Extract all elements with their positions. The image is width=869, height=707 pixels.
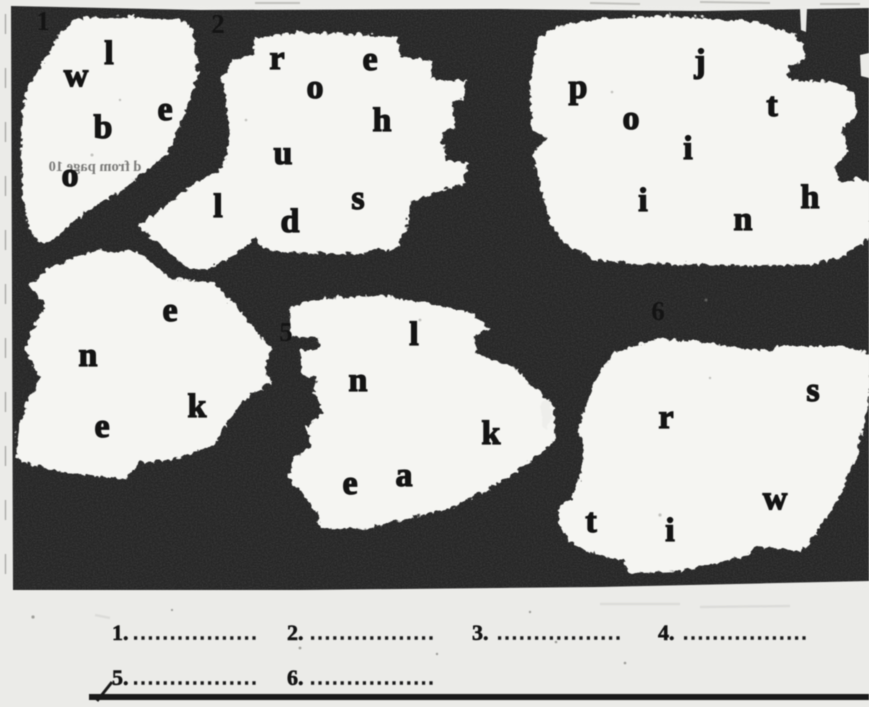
svg-text:r: r — [269, 40, 284, 77]
svg-text:d: d — [281, 203, 300, 240]
svg-text:n: n — [734, 201, 753, 238]
svg-text:l: l — [104, 35, 113, 72]
svg-text:s: s — [351, 180, 364, 217]
svg-text:3.: 3. — [472, 620, 489, 645]
svg-text:l: l — [213, 188, 222, 225]
svg-text:i: i — [638, 182, 647, 219]
svg-text:2.: 2. — [287, 620, 304, 645]
svg-text:o: o — [307, 69, 324, 106]
svg-text:2: 2 — [211, 9, 225, 39]
svg-text:4.: 4. — [658, 620, 675, 645]
svg-text:e: e — [162, 292, 177, 329]
svg-text:l: l — [409, 316, 418, 353]
svg-text:5.: 5. — [112, 665, 129, 690]
svg-text:i: i — [683, 130, 692, 167]
svg-text:r: r — [658, 399, 673, 436]
svg-text:6.: 6. — [287, 665, 304, 690]
svg-text:6: 6 — [651, 296, 665, 326]
svg-text:5: 5 — [279, 317, 293, 347]
svg-text:b: b — [94, 109, 113, 146]
svg-text:s: s — [806, 372, 819, 409]
svg-text:t: t — [766, 87, 778, 124]
svg-text:e: e — [362, 41, 377, 78]
svg-text:o: o — [62, 157, 79, 194]
svg-text:e: e — [157, 91, 172, 128]
svg-text:h: h — [373, 102, 392, 139]
svg-text:1.: 1. — [112, 620, 129, 645]
svg-text:k: k — [482, 415, 501, 452]
svg-text:t: t — [585, 503, 597, 540]
svg-text:u: u — [274, 135, 293, 172]
svg-text:h: h — [801, 179, 820, 216]
svg-text:i: i — [665, 512, 674, 549]
svg-text:a: a — [396, 457, 413, 494]
svg-text:e: e — [94, 408, 109, 445]
svg-text:w: w — [64, 57, 89, 94]
svg-text:n: n — [349, 362, 368, 399]
svg-text:1: 1 — [36, 6, 50, 36]
svg-text:j: j — [693, 43, 705, 80]
svg-text:o: o — [623, 100, 640, 137]
svg-text:e: e — [342, 465, 357, 502]
svg-text:w: w — [763, 480, 788, 517]
svg-text:n: n — [79, 337, 98, 374]
svg-text:p: p — [569, 69, 588, 106]
svg-text:k: k — [188, 388, 207, 425]
